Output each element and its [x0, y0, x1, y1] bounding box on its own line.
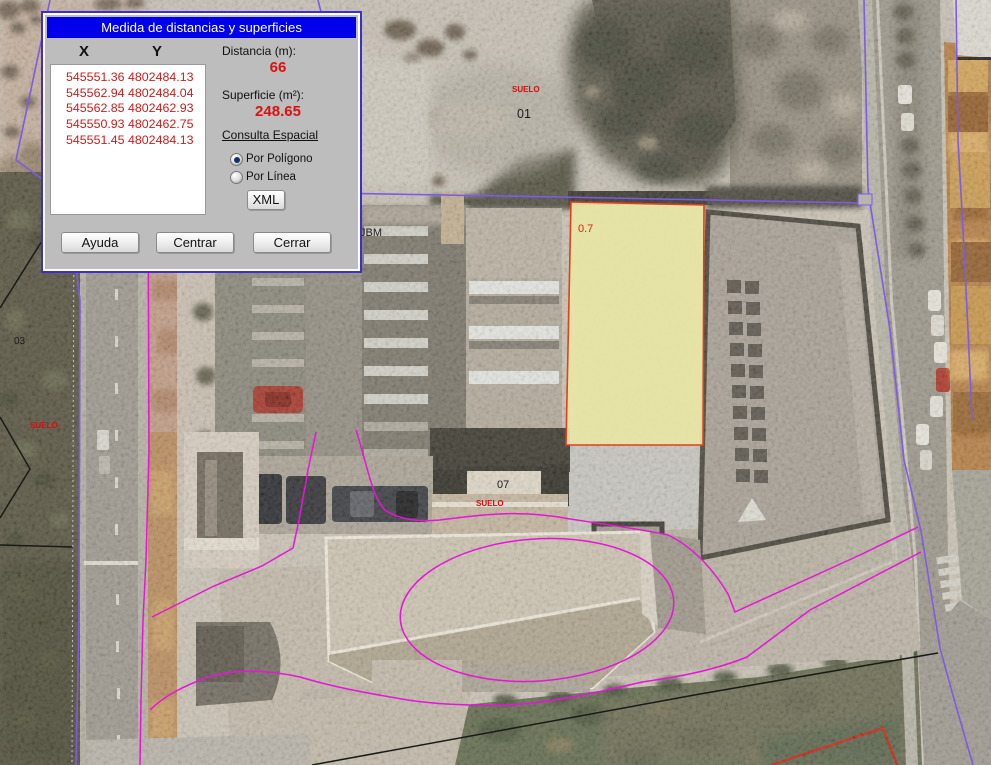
- svg-text:JBM: JBM: [360, 227, 382, 239]
- svg-text:0.7: 0.7: [578, 223, 593, 235]
- svg-text:07: 07: [497, 479, 509, 491]
- svg-text:SUELO: SUELO: [30, 421, 58, 430]
- svg-text:03: 03: [14, 336, 26, 347]
- svg-text:SUELO: SUELO: [476, 499, 504, 508]
- svg-text:SUELO: SUELO: [512, 85, 540, 94]
- svg-text:01: 01: [517, 107, 531, 121]
